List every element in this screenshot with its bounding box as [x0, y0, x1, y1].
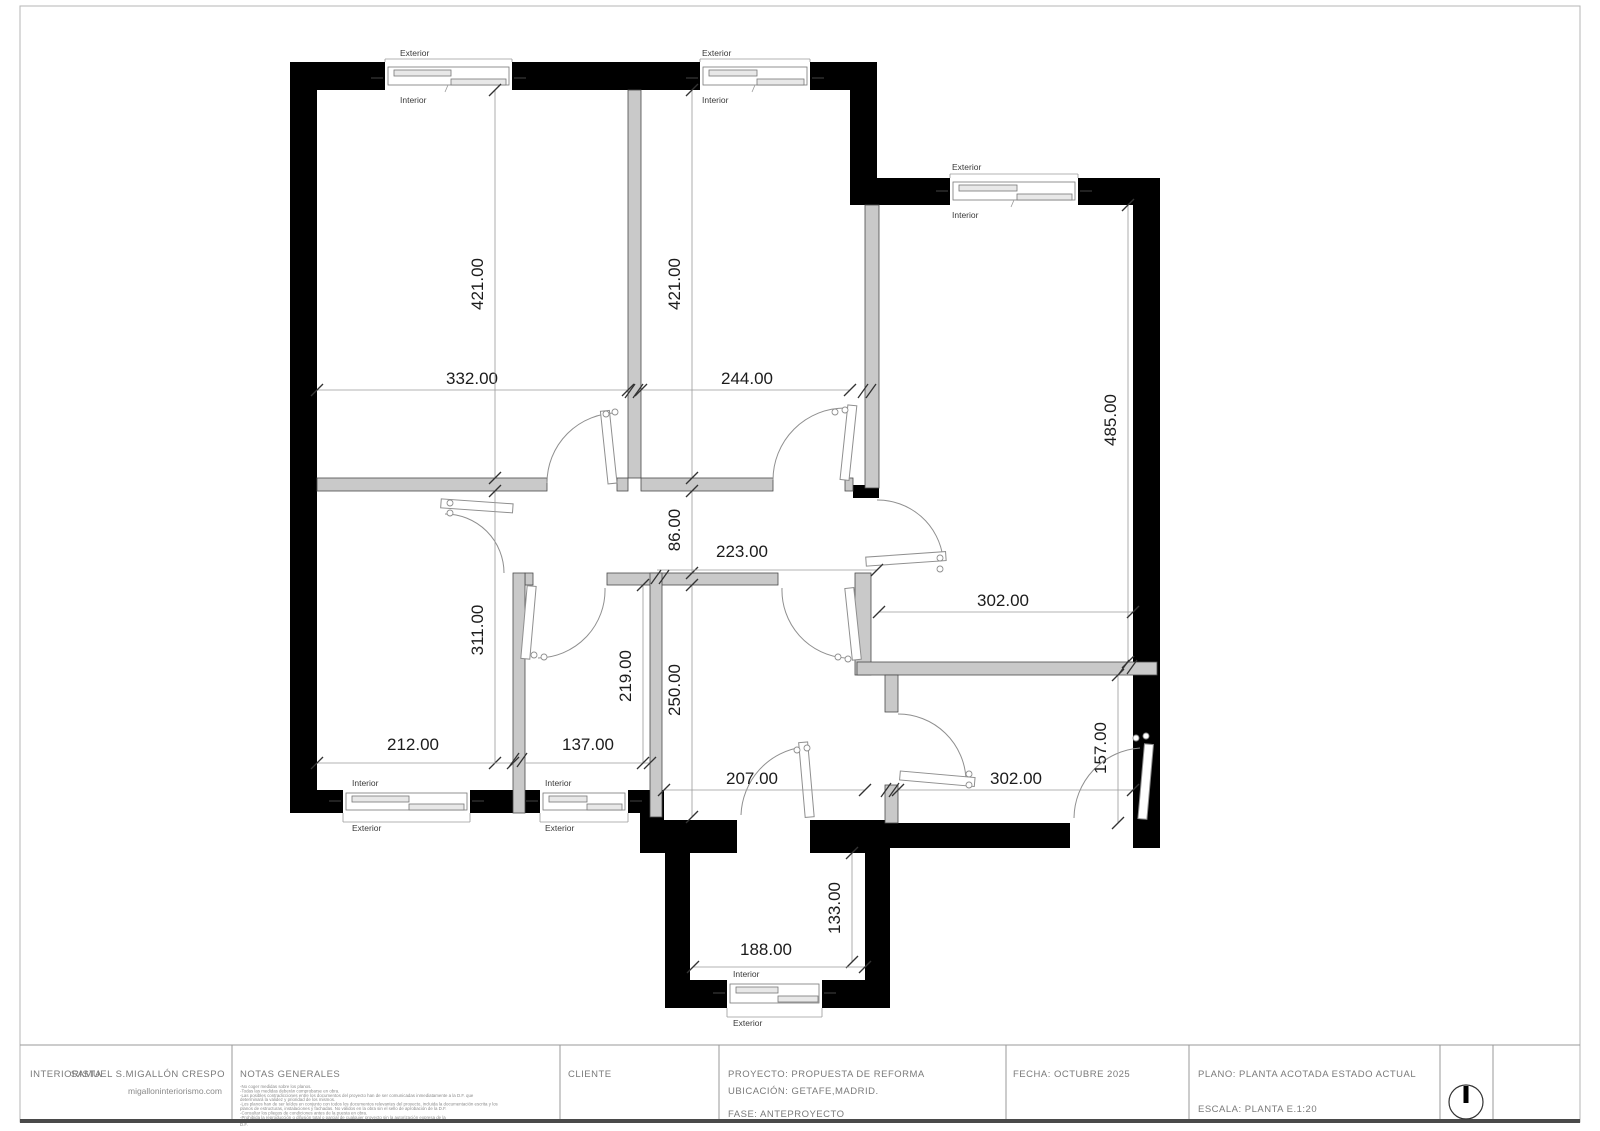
window-label-interior: Interior — [545, 778, 572, 788]
svg-text:421.00: 421.00 — [665, 258, 684, 310]
window-label-exterior: Exterior — [352, 823, 381, 833]
svg-text:250.00: 250.00 — [665, 664, 684, 716]
svg-text:311.00: 311.00 — [468, 605, 487, 656]
plano-field: PLANO: PLANTA ACOTADA ESTADO ACTUAL — [1198, 1069, 1416, 1080]
window-label-exterior: Exterior — [702, 48, 731, 58]
svg-text:137.00: 137.00 — [562, 735, 614, 754]
window-label-interior: Interior — [702, 95, 729, 105]
window-label-interior: Interior — [952, 210, 979, 220]
interiorista-name: SAMUEL S.MIGALLÓN CRESPO — [71, 1069, 225, 1080]
svg-text:188.00: 188.00 — [740, 940, 792, 959]
svg-text:302.00: 302.00 — [990, 769, 1042, 788]
window-label-exterior: Exterior — [545, 823, 574, 833]
svg-text:219.00: 219.00 — [616, 650, 635, 702]
window-label-exterior: Exterior — [733, 1018, 762, 1028]
floor-plan-canvas: Exterior Interior Exterior Interior Exte… — [0, 0, 1600, 1131]
proyecto-field: PROYECTO: PROPUESTA DE REFORMA — [728, 1069, 925, 1080]
svg-text:332.00: 332.00 — [446, 369, 498, 388]
svg-text:D.F.: D.F. — [240, 1122, 248, 1127]
svg-text:133.00: 133.00 — [825, 882, 844, 934]
cliente-label: CLIENTE — [568, 1069, 612, 1080]
notas-generales-label: NOTAS GENERALES — [240, 1069, 340, 1080]
fecha-field: FECHA: OCTUBRE 2025 — [1013, 1069, 1130, 1080]
drawing-sheet: Exterior Interior Exterior Interior Exte… — [0, 0, 1600, 1131]
window-label-interior: Interior — [733, 969, 760, 979]
svg-text:207.00: 207.00 — [726, 769, 778, 788]
svg-text:302.00: 302.00 — [977, 591, 1029, 610]
window-label-interior: Interior — [400, 95, 427, 105]
svg-text:212.00: 212.00 — [387, 735, 439, 754]
window-label-exterior: Exterior — [400, 48, 429, 58]
escala-field: ESCALA: PLANTA E.1:20 — [1198, 1104, 1317, 1115]
interiorista-website: migalloninteriorismo.com — [128, 1086, 222, 1096]
fase-field: FASE: ANTEPROYECTO — [728, 1109, 845, 1120]
window-label-interior: Interior — [352, 778, 379, 788]
svg-text:485.00: 485.00 — [1101, 394, 1120, 446]
window-label-exterior: Exterior — [952, 162, 981, 172]
ubicacion-field: UBICACIÓN: GETAFE,MADRID. — [728, 1086, 879, 1097]
svg-text:157.00: 157.00 — [1091, 722, 1110, 774]
svg-text:244.00: 244.00 — [721, 369, 773, 388]
svg-text:-Prohibida la reproducción o d: -Prohibida la reproducción o difusión to… — [240, 1115, 446, 1120]
paper — [0, 0, 1600, 1131]
svg-text:421.00: 421.00 — [468, 258, 487, 310]
svg-text:223.00: 223.00 — [716, 542, 768, 561]
svg-text:86.00: 86.00 — [665, 509, 684, 552]
